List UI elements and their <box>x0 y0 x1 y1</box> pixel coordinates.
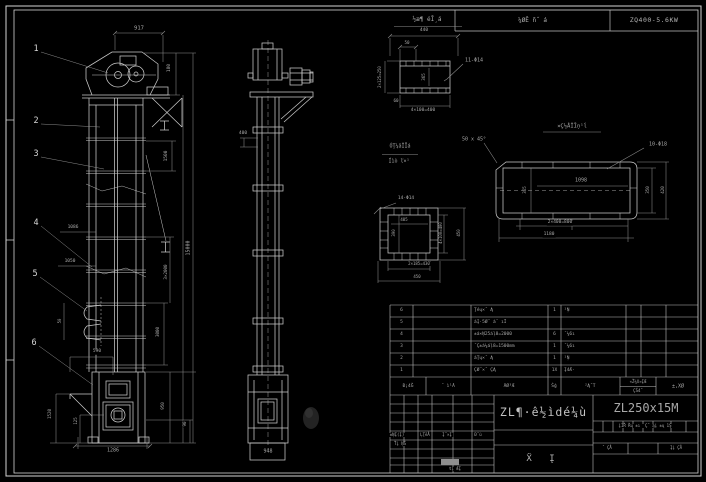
dim-15000: 15000 <box>187 239 192 256</box>
margin-tick <box>6 120 14 360</box>
parts-cell-material: ˝¼6ı <box>561 333 629 338</box>
sig-col-1: ±ŅĮ(Į) <box>389 433 405 437</box>
parts-cell-name: Ţéų×˝ Ą <box>471 309 551 314</box>
parts-header-qty: Ŝģ <box>550 385 557 390</box>
detail-c-title-1: ÓŢ¼ăÎĪá <box>388 145 411 150</box>
dim-350: 350 <box>646 185 650 195</box>
dim-440: 440 <box>419 29 429 34</box>
sig-col-4: Đ˝ù <box>473 433 482 437</box>
dim-2x125: 2×125=250 <box>378 65 382 89</box>
hole-label-a: 11-Φ14 <box>464 59 484 64</box>
dim-1520: 1520 <box>48 408 52 420</box>
bucket-profiles <box>84 305 101 340</box>
front-view-linework <box>70 52 182 443</box>
parts-cell-material: ¹Ņ <box>561 357 629 362</box>
balloon-leaders <box>39 52 108 385</box>
dim-3000: 3000 <box>156 326 160 338</box>
dim-390: 390 <box>392 228 396 237</box>
parts-header-material: ²Ą˝T <box>584 385 597 390</box>
parts-cell-no: 5 <box>390 321 413 326</box>
header-motor-model-cell: ZQ400-5.6KW <box>610 10 698 31</box>
parts-cell-material: ¹Ņ <box>561 309 629 314</box>
dim-365-a: 365 <box>422 72 426 82</box>
parts-cell-qty: 6 <box>548 333 561 338</box>
parts-cell-material: ˝¼6ı <box>561 345 629 350</box>
dim-1286: 1286 <box>106 449 120 454</box>
dim-450-b: 450 <box>412 275 421 279</box>
side-view-dimensions <box>240 138 258 147</box>
dim-1098: 1098 <box>574 179 588 184</box>
sig-approved: ŧį ÆĮ <box>448 467 462 471</box>
parts-cell-no: 1 <box>390 369 413 374</box>
dim-50-a: 50 <box>403 41 410 45</box>
chamfer-note: 50 x 45° <box>461 138 487 143</box>
cad-drawing-canvas: ¼ØĒ ñ˝ á ZQ400-5.6KW ZL¶·ê½ìdé¼ù ZL250x1… <box>0 0 706 482</box>
dim-60: 60 <box>392 99 399 103</box>
parts-header-remark: ±,XØ <box>671 385 685 390</box>
parts-cell-no: 6 <box>390 309 413 314</box>
dim-125: 125 <box>74 416 78 425</box>
parts-cell-name: áŢų×˝ Ą <box>471 357 551 362</box>
balloon-4: 4 <box>32 219 39 228</box>
dim-90: 90 <box>183 420 187 427</box>
dim-950: 950 <box>161 401 165 411</box>
dim-365-b: 365 <box>523 185 527 195</box>
dim-450-r: 450 <box>457 228 461 237</box>
detail-a-title: ½æ¶ éĪ¸á <box>412 17 443 23</box>
detail-plate-dimensions <box>484 132 669 242</box>
sheet-cell-right: Įį ÇÅ <box>669 446 683 450</box>
sheet-cell-left: ˝ ÇÅ <box>601 446 613 450</box>
drive-motor <box>128 66 144 82</box>
mini-table-header: į1Ř Řų ±ı ׊ Ç˝ ąį ±ų 1Ş <box>618 424 673 428</box>
dim-180: 180 <box>168 63 173 73</box>
motor-side <box>290 68 302 85</box>
parts-cell-name: ÇØ˝×˝ ÇĄ <box>471 369 551 374</box>
parts-cell-name: ±á×Ņ25áļ8=2000 <box>471 333 551 338</box>
boot-section <box>92 372 145 443</box>
balloon-5: 5 <box>31 270 38 279</box>
dim-405: 405 <box>399 218 408 222</box>
product-title: ZL¶·ê½ìdé¼ù <box>494 398 593 428</box>
hole-label-c: 14-Φ14 <box>397 197 415 202</box>
casing <box>89 98 143 372</box>
highlight-cell <box>441 459 459 465</box>
parts-cell-qty: 1X <box>548 369 561 374</box>
detail-channel-dimensions <box>385 27 463 109</box>
parts-cell-name: áĮ·5Ø˝ á˝ ıİ <box>471 321 551 326</box>
parts-cell-qty: 1 <box>548 345 561 350</box>
header-material-cell: ¼ØĒ ñ˝ á <box>455 10 610 31</box>
parts-header-weight-top: «Ž¼X¤ĮÆ <box>629 380 648 384</box>
detail-c-title-2: Íìò ľ×¹ <box>387 160 410 165</box>
parts-cell-no: 3 <box>390 345 413 350</box>
dim-948: 948 <box>262 450 273 455</box>
dim-3x2000: 3×2000 <box>164 263 168 280</box>
dim-400-side: 400 <box>238 132 248 137</box>
dim-50-bucket: 50 <box>58 318 62 325</box>
detail-b-title: ¤Ç½ÅÎĪņ¹ĺ <box>556 124 588 130</box>
sig-col-3: Į˝×Į <box>441 433 453 437</box>
sig-drawn: Ťį ŅŠ <box>393 442 407 446</box>
dim-1050: 1050 <box>64 260 77 265</box>
dim-4x100-a: 4×100=400 <box>410 109 436 114</box>
dim-590: 590 <box>92 350 102 355</box>
balloon-1: 1 <box>32 45 39 54</box>
dim-1500: 1500 <box>165 150 170 163</box>
parts-cell-qty: 1 <box>548 309 561 314</box>
dim-2x185: 2×185=430 <box>407 262 431 266</box>
dim-917: 917 <box>133 26 145 32</box>
parts-header-name: ÃØ³Æ <box>503 385 516 390</box>
balloon-6: 6 <box>30 339 37 348</box>
dim-2x400: 2×400=800 <box>547 221 573 226</box>
balloon-2: 2 <box>32 117 39 126</box>
side-view-linework <box>248 40 313 460</box>
parts-cell-qty: 1 <box>548 357 561 362</box>
drawing-number: ZL250x15M <box>594 399 698 416</box>
dim-420: 420 <box>661 185 665 195</box>
screen-smudge <box>303 407 319 429</box>
dim-1180: 1180 <box>543 233 556 238</box>
sig-col-2: ĻŢēÅ <box>419 433 431 437</box>
support-beam-symbol <box>160 121 170 252</box>
parts-header-code: ˝ ì¹Ã <box>440 385 456 390</box>
parts-cell-no: 4 <box>390 333 413 338</box>
parts-cell-name: ˝Ç±á¼áļ8=1500mm <box>471 345 551 350</box>
parts-header-no: Đ¡4Ğ <box>402 385 415 390</box>
hole-label-b: 10-Φ18 <box>648 143 668 148</box>
dim-1086: 1086 <box>67 226 80 231</box>
parts-header-weight-bottom: ÇŠ4˝ <box>632 389 644 393</box>
detail-plate-linework <box>496 162 637 219</box>
parts-cell-material: Į4Æ· <box>561 369 629 374</box>
sheet-label: Ẍ Į <box>494 446 593 472</box>
balloon-3: 3 <box>32 150 39 159</box>
dim-4x100-c: 4×100=400 <box>439 221 443 245</box>
detail-flange-linework <box>380 208 438 260</box>
parts-cell-no: 2 <box>390 357 413 362</box>
